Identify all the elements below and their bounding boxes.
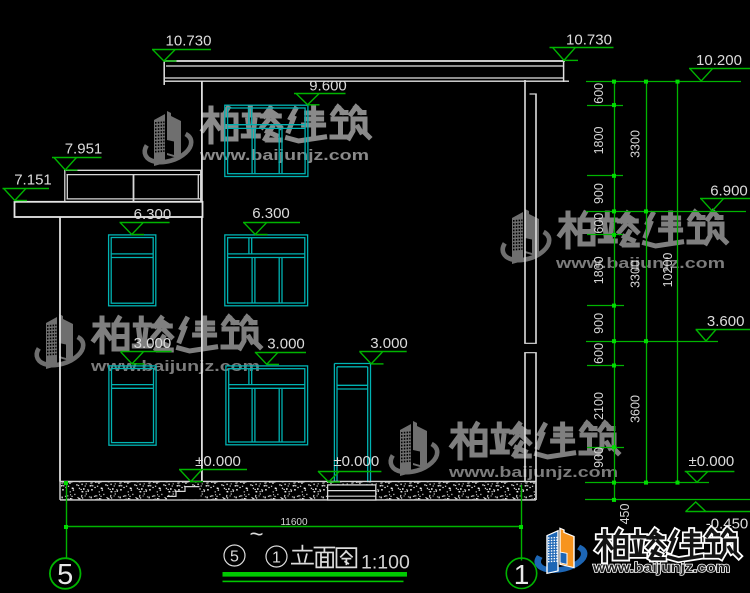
svg-text:11600: 11600 (280, 517, 308, 528)
svg-text:3.000: 3.000 (267, 336, 305, 353)
svg-text:3.000: 3.000 (370, 335, 408, 352)
svg-text:3600: 3600 (629, 395, 643, 423)
svg-text:1800: 1800 (592, 127, 606, 155)
svg-text:10.730: 10.730 (566, 32, 612, 49)
svg-text:1:100: 1:100 (361, 552, 410, 574)
svg-text:±0.000: ±0.000 (195, 453, 241, 470)
svg-text:10.730: 10.730 (166, 33, 212, 50)
svg-text:9.600: 9.600 (309, 78, 347, 95)
svg-text:6.900: 6.900 (710, 183, 748, 200)
svg-text:3.000: 3.000 (134, 335, 172, 352)
svg-text:1800: 1800 (592, 256, 606, 284)
svg-text:5: 5 (57, 559, 73, 591)
svg-text:600: 600 (592, 343, 606, 364)
svg-text:3300: 3300 (629, 130, 643, 158)
svg-text:5: 5 (230, 549, 239, 566)
svg-text:600: 600 (592, 83, 606, 104)
svg-text:1: 1 (272, 550, 281, 567)
svg-text:600: 600 (592, 213, 606, 234)
svg-text:900: 900 (592, 447, 606, 468)
svg-text:10.200: 10.200 (696, 52, 742, 69)
svg-text:900: 900 (592, 183, 606, 204)
svg-text:1: 1 (514, 559, 530, 590)
svg-text:±0.000: ±0.000 (689, 453, 735, 470)
svg-text:2100: 2100 (592, 392, 606, 420)
svg-text:3300: 3300 (629, 260, 643, 288)
svg-text:7.151: 7.151 (14, 172, 52, 189)
svg-text:450: 450 (618, 504, 632, 525)
svg-text:10200: 10200 (661, 253, 675, 288)
svg-text:6.300: 6.300 (134, 206, 172, 223)
svg-text:900: 900 (592, 313, 606, 334)
svg-text:www.baijunjz.com: www.baijunjz.com (592, 560, 730, 575)
svg-text:www.baijunjz.com: www.baijunjz.com (90, 359, 260, 375)
svg-text:±0.000: ±0.000 (333, 453, 379, 470)
svg-text:6.300: 6.300 (252, 205, 290, 222)
svg-text:3.600: 3.600 (707, 313, 745, 330)
svg-text:7.951: 7.951 (65, 141, 103, 158)
svg-text:~: ~ (249, 521, 263, 548)
svg-text:-0.450: -0.450 (706, 516, 749, 533)
